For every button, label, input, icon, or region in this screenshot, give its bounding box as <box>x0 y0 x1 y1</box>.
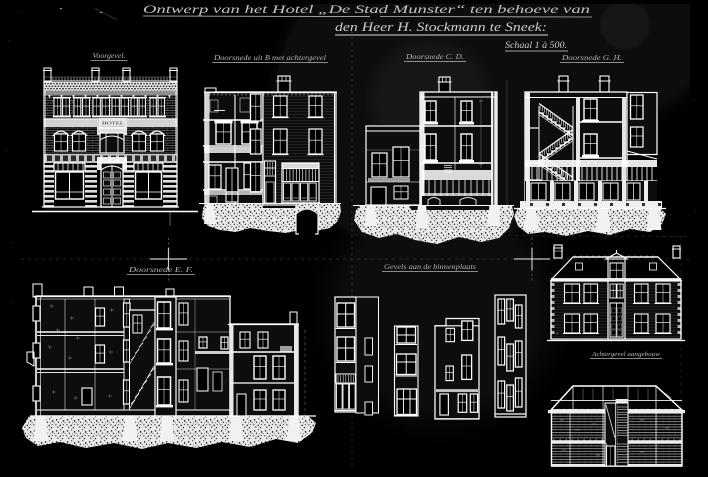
svg-text:Achtergevel aangebouw: Achtergevel aangebouw <box>591 351 661 358</box>
svg-text:○: ○ <box>555 332 558 337</box>
svg-text:Gevels aan de binnenplaats: Gevels aan de binnenplaats <box>384 263 476 271</box>
svg-text:Doorsnede C. D.: Doorsnede C. D. <box>405 52 464 61</box>
svg-text:Doorsnede uit B met achtergeve: Doorsnede uit B met achtergevel <box>213 54 326 62</box>
svg-text:Doorsnede G. H.: Doorsnede G. H. <box>561 53 622 62</box>
svg-text:Schaal 1 à 500.: Schaal 1 à 500. <box>505 40 567 50</box>
svg-text:Voorgevel.: Voorgevel. <box>93 51 126 60</box>
svg-text:den Heer H. Stockmann te Sneek: den Heer H. Stockmann te Sneek: <box>335 20 547 34</box>
svg-text:Doorsnede E. F.: Doorsnede E. F. <box>128 265 193 274</box>
svg-text:Ontwerp van het Hotel „De Stad: Ontwerp van het Hotel „De Stad Munster“ … <box>143 2 590 16</box>
